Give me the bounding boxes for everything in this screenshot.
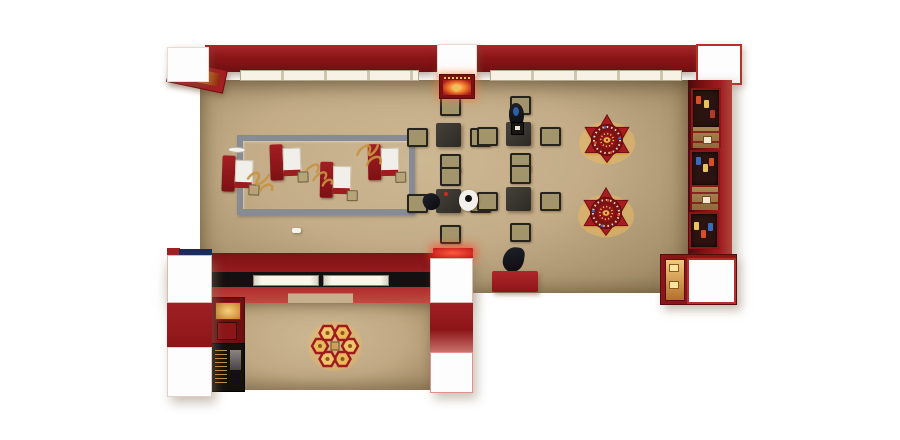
ceiling-light-strip — [490, 70, 682, 81]
chair — [440, 225, 461, 244]
divider-item — [703, 136, 712, 144]
sign-emblem-icon — [453, 85, 460, 91]
person-head — [465, 195, 472, 202]
stool — [395, 172, 406, 183]
cabinet-item — [710, 110, 715, 118]
chair — [477, 127, 498, 146]
sign-text-dashes — [444, 77, 470, 79]
pillar-top-left — [167, 47, 209, 82]
stool — [347, 190, 358, 201]
divider-item — [702, 196, 711, 204]
table — [436, 123, 461, 147]
gold-item — [669, 264, 679, 272]
table-accent-dot — [444, 192, 448, 196]
box-label — [515, 126, 520, 130]
extension-light-panel — [253, 275, 319, 286]
gold-item — [669, 281, 679, 289]
divider-stripe — [693, 131, 719, 133]
wall-cabinet-1 — [691, 88, 721, 129]
cabinet-item — [708, 223, 713, 231]
pillar-segment-red — [167, 303, 212, 347]
chair — [510, 223, 531, 242]
extension-shelf-upper — [211, 297, 245, 345]
showroom-render — [0, 0, 900, 440]
top-wall-right — [475, 45, 697, 72]
mirror-icon — [228, 147, 246, 154]
floor-marker — [292, 228, 301, 233]
divider-stripe — [692, 192, 718, 194]
flower-counter-2 — [575, 185, 637, 241]
pillar-segment-white — [430, 258, 473, 303]
extension-light-panel — [323, 275, 389, 286]
wood-divider — [690, 187, 720, 210]
lit-shelf-item — [215, 302, 241, 320]
cabinet-item — [703, 164, 708, 172]
pillar-segment-red — [430, 303, 473, 352]
reception-desk — [492, 271, 538, 292]
cabinet-item — [696, 157, 701, 165]
chair — [540, 192, 561, 211]
chair — [440, 167, 461, 186]
cabinet-item — [709, 158, 714, 166]
desk-top — [283, 148, 302, 173]
illuminated-logo-sign — [439, 74, 475, 99]
table-box — [511, 122, 524, 135]
chair — [510, 165, 531, 184]
cabinet-item — [694, 222, 699, 230]
extension-shelf-lower — [211, 343, 245, 392]
pillar-top-center — [437, 44, 477, 77]
pillar-top-right — [696, 44, 742, 85]
pillar-segment-white — [167, 255, 212, 303]
chair — [440, 97, 461, 116]
cabinet-item — [704, 100, 709, 108]
extension-glow-sign — [433, 248, 473, 258]
pillar-extension-left — [167, 255, 212, 397]
cabinet-item — [696, 96, 701, 104]
case-top — [687, 258, 736, 304]
corner-display-case-bottom-right — [660, 254, 737, 305]
chair — [477, 192, 498, 211]
chair — [540, 127, 561, 146]
wall-cabinet-2 — [690, 150, 720, 187]
wall-cabinet-3 — [689, 212, 719, 249]
gold-label-texture — [215, 348, 227, 386]
pillar-segment-white — [167, 347, 212, 397]
desk-chair — [221, 155, 235, 191]
extension-wall-strip — [212, 272, 430, 287]
shelf-item — [217, 322, 237, 340]
chair — [407, 128, 428, 147]
shelf-item — [230, 350, 241, 370]
person-jacket — [513, 107, 519, 116]
pillar-segment-white — [430, 352, 473, 393]
hex-pod-cluster — [307, 320, 363, 372]
pillar-extension-right — [430, 258, 473, 393]
top-wall-left — [205, 45, 437, 72]
wood-divider — [691, 127, 721, 148]
ceiling-light-strip — [240, 70, 419, 81]
cabinet-item — [701, 230, 706, 238]
table — [506, 187, 531, 211]
flower-counter-1 — [576, 112, 638, 168]
